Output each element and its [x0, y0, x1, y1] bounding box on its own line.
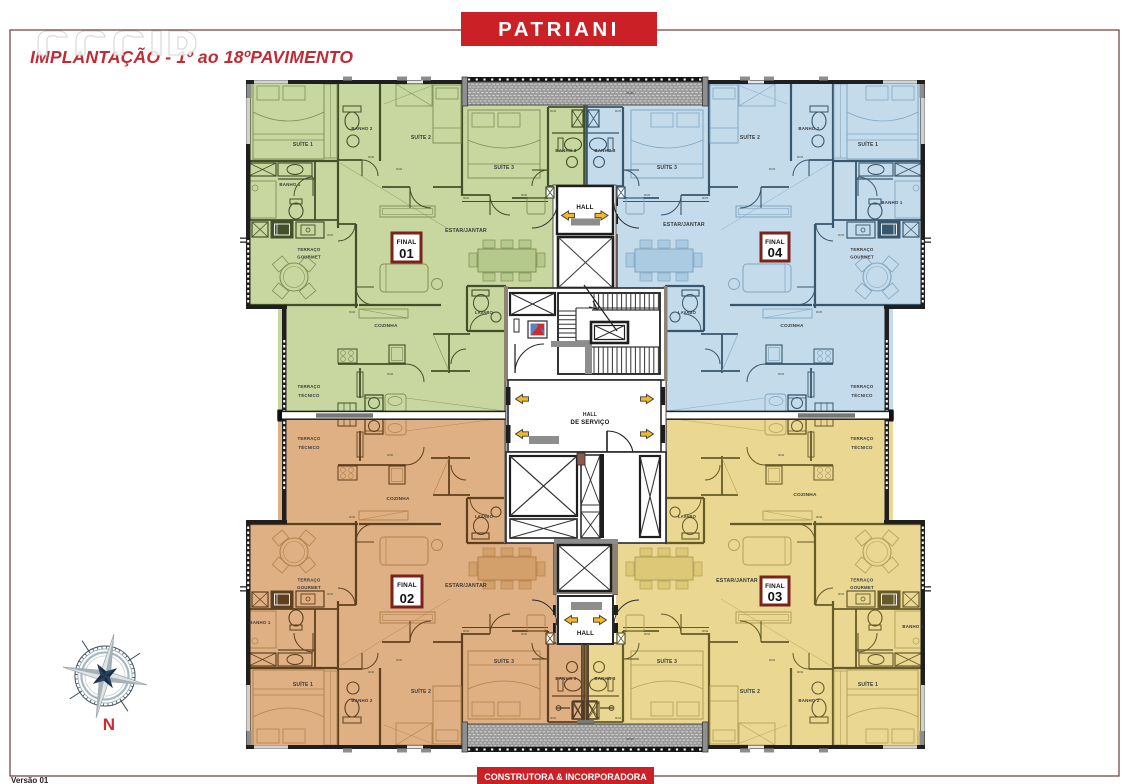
svg-text:COZINHA: COZINHA [386, 496, 410, 502]
svg-text:Versão 01: Versão 01 [11, 776, 49, 784]
svg-text:03: 03 [768, 589, 783, 604]
svg-text:TERRAÇO: TERRAÇO [297, 384, 320, 389]
svg-text:SUÍTE 2: SUÍTE 2 [740, 687, 760, 695]
svg-text:ESTAR/JANTAR: ESTAR/JANTAR [663, 222, 705, 228]
svg-text:BANHO 1: BANHO 1 [279, 182, 301, 187]
svg-text:BANHO 2: BANHO 2 [351, 698, 373, 703]
svg-text:TERRAÇO: TERRAÇO [850, 436, 873, 441]
svg-text:GOURMET: GOURMET [297, 255, 321, 260]
svg-text:COZINHA: COZINHA [374, 323, 398, 329]
svg-text:ESTAR/JANTAR: ESTAR/JANTAR [445, 583, 487, 589]
svg-text:01: 01 [399, 246, 414, 261]
svg-text:BANHO 2: BANHO 2 [798, 126, 820, 131]
svg-text:SUÍTE 1: SUÍTE 1 [858, 140, 878, 148]
svg-text:PATRIANI: PATRIANI [498, 18, 620, 41]
svg-text:BANHO 2: BANHO 2 [351, 126, 373, 131]
svg-text:04: 04 [768, 245, 783, 260]
svg-text:FINAL: FINAL [397, 239, 417, 246]
svg-text:LAVABO: LAVABO [475, 514, 494, 519]
svg-text:COZINHA: COZINHA [793, 492, 817, 498]
svg-text:GOURMET: GOURMET [297, 585, 321, 590]
svg-text:COZINHA: COZINHA [780, 323, 804, 329]
svg-text:GOURMET: GOURMET [850, 255, 874, 260]
svg-text:TERRAÇO: TERRAÇO [297, 247, 320, 252]
svg-text:TERRAÇO: TERRAÇO [850, 384, 873, 389]
svg-text:SUÍTE 1: SUÍTE 1 [293, 140, 313, 148]
svg-text:TÉCNICO: TÉCNICO [298, 445, 320, 450]
svg-text:BANHO 3: BANHO 3 [555, 676, 577, 681]
svg-text:SUÍTE 2: SUÍTE 2 [411, 687, 431, 695]
svg-text:TÉCNICO: TÉCNICO [298, 393, 320, 398]
svg-text:SUÍTE 2: SUÍTE 2 [740, 133, 760, 141]
svg-text:DE SERVIÇO: DE SERVIÇO [571, 420, 610, 426]
svg-text:05-06: 05-06 [626, 91, 634, 95]
svg-text:SUÍTE 1: SUÍTE 1 [293, 680, 313, 688]
svg-text:SUÍTE 3: SUÍTE 3 [657, 657, 677, 665]
svg-text:TÉCNICO: TÉCNICO [851, 393, 873, 398]
svg-text:LAVABO: LAVABO [678, 310, 697, 315]
svg-text:SUÍTE 3: SUÍTE 3 [494, 657, 514, 665]
svg-text:N: N [103, 715, 115, 734]
svg-text:SUÍTE 1: SUÍTE 1 [858, 680, 878, 688]
svg-text:HALL: HALL [576, 204, 593, 211]
svg-text:ESTAR/JANTAR: ESTAR/JANTAR [445, 228, 487, 234]
svg-text:GOURMET: GOURMET [850, 585, 874, 590]
svg-text:BANHO 3: BANHO 3 [594, 148, 616, 153]
svg-text:TERRAÇO: TERRAÇO [850, 578, 873, 583]
svg-text:TERRAÇO: TERRAÇO [850, 247, 873, 252]
svg-text:HALL: HALL [583, 412, 597, 418]
svg-text:TERRAÇO: TERRAÇO [297, 578, 320, 583]
svg-text:CONSTRUTORA & INCORPORADORA: CONSTRUTORA & INCORPORADORA [484, 772, 647, 782]
svg-text:HALL: HALL [577, 630, 594, 637]
svg-text:BANHO 3: BANHO 3 [555, 148, 577, 153]
svg-text:BANHO 1: BANHO 1 [902, 624, 924, 629]
svg-text:ESTAR/JANTAR: ESTAR/JANTAR [716, 578, 758, 584]
svg-text:BANHO 1: BANHO 1 [881, 200, 903, 205]
svg-text:LAVABO: LAVABO [475, 310, 494, 315]
svg-text:TERRAÇO: TERRAÇO [297, 436, 320, 441]
svg-text:BANHO 1: BANHO 1 [249, 620, 271, 625]
svg-text:FINAL: FINAL [397, 582, 417, 589]
svg-text:02: 02 [400, 591, 415, 606]
svg-text:SUÍTE 3: SUÍTE 3 [494, 163, 514, 171]
svg-text:05-06: 05-06 [626, 737, 634, 741]
svg-text:SUÍTE 2: SUÍTE 2 [411, 133, 431, 141]
svg-text:SUÍTE 3: SUÍTE 3 [657, 163, 677, 171]
svg-text:LAVABO: LAVABO [678, 514, 697, 519]
svg-text:TÉCNICO: TÉCNICO [851, 445, 873, 450]
svg-text:BANHO 2: BANHO 2 [798, 698, 820, 703]
svg-text:BANHO 3: BANHO 3 [594, 676, 616, 681]
